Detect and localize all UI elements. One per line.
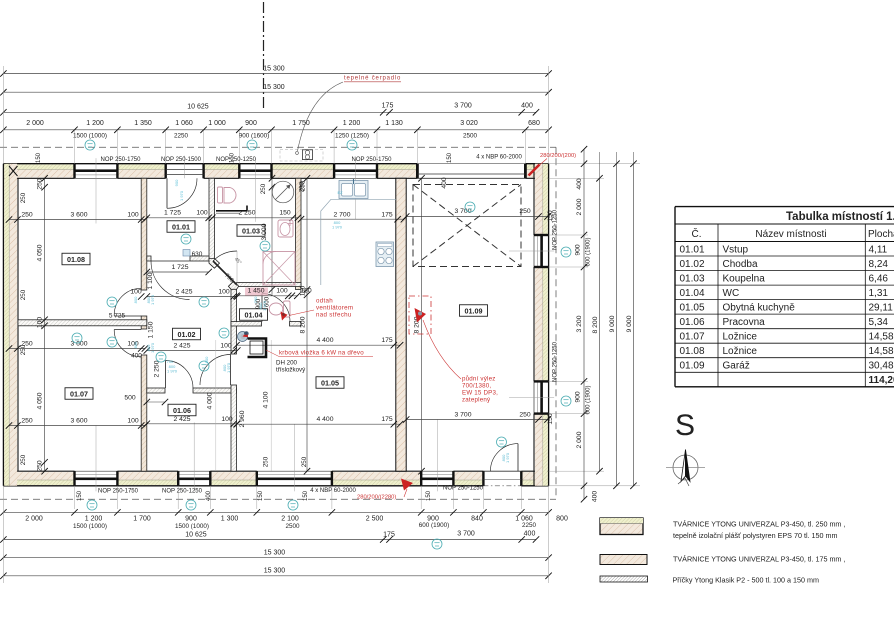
svg-text:01.02: 01.02 xyxy=(178,330,196,339)
svg-text:1 725: 1 725 xyxy=(164,210,181,217)
svg-text:S: S xyxy=(675,409,695,442)
svg-text:100: 100 xyxy=(276,288,288,295)
svg-text:1 970: 1 970 xyxy=(262,300,267,311)
svg-text:840: 840 xyxy=(471,516,483,523)
svg-text:500: 500 xyxy=(124,395,136,402)
svg-text:3 700: 3 700 xyxy=(457,531,475,538)
svg-text:WC: WC xyxy=(723,288,740,299)
svg-text:NOP 250-1250: NOP 250-1250 xyxy=(162,489,203,495)
svg-text:150: 150 xyxy=(279,210,291,217)
svg-text:3 000: 3 000 xyxy=(261,223,268,240)
svg-text:4 000: 4 000 xyxy=(207,392,214,409)
svg-text:400: 400 xyxy=(524,531,536,538)
svg-text:700: 700 xyxy=(253,296,258,303)
svg-text:01.08: 01.08 xyxy=(680,346,705,357)
svg-text:400: 400 xyxy=(521,103,533,110)
svg-text:1 970: 1 970 xyxy=(167,369,178,374)
svg-text:1500 (1000): 1500 (1000) xyxy=(73,133,107,140)
svg-text:4,11: 4,11 xyxy=(869,244,888,255)
svg-text:250: 250 xyxy=(37,460,44,472)
svg-text:1500 (1000): 1500 (1000) xyxy=(175,523,209,530)
svg-text:9 000: 9 000 xyxy=(626,315,633,332)
svg-text:NOP 250-1750: NOP 250-1750 xyxy=(352,157,393,163)
svg-text:600 (1900): 600 (1900) xyxy=(586,385,592,414)
svg-text:3 020: 3 020 xyxy=(460,120,478,127)
svg-text:14,58: 14,58 xyxy=(869,346,894,357)
svg-text:400: 400 xyxy=(592,491,599,503)
svg-text:4 100: 4 100 xyxy=(263,391,270,408)
svg-text:1 725: 1 725 xyxy=(171,264,188,271)
svg-text:1 700: 1 700 xyxy=(133,516,151,523)
svg-text:100: 100 xyxy=(220,343,232,350)
svg-text:250: 250 xyxy=(20,192,27,203)
svg-text:2500: 2500 xyxy=(463,133,478,140)
svg-text:400: 400 xyxy=(441,177,448,189)
svg-text:1 100: 1 100 xyxy=(147,272,154,289)
svg-text:01.09: 01.09 xyxy=(465,307,483,316)
svg-text:280/200/(2280): 280/200/(2280) xyxy=(357,495,396,501)
svg-text:100: 100 xyxy=(221,416,233,423)
svg-text:1 970: 1 970 xyxy=(505,452,510,463)
svg-text:01.01: 01.01 xyxy=(172,223,190,232)
svg-text:2 000: 2 000 xyxy=(576,431,583,448)
svg-text:150: 150 xyxy=(547,413,554,425)
svg-text:1 200: 1 200 xyxy=(86,120,104,127)
svg-text:NOP 250-1250: NOP 250-1250 xyxy=(216,157,257,163)
svg-text:150: 150 xyxy=(77,490,83,501)
svg-text:2250: 2250 xyxy=(522,522,537,529)
svg-text:4 400: 4 400 xyxy=(316,416,333,423)
svg-text:Ložnice: Ložnice xyxy=(723,346,758,357)
svg-text:800: 800 xyxy=(133,341,138,348)
svg-text:250: 250 xyxy=(20,454,27,465)
svg-text:Tabulka místností 1.NP: Tabulka místností 1.NP xyxy=(786,211,894,223)
svg-text:odtah: odtah xyxy=(316,298,333,305)
svg-text:15 300: 15 300 xyxy=(264,550,286,557)
svg-text:150: 150 xyxy=(447,152,453,163)
svg-text:2500: 2500 xyxy=(285,523,300,530)
svg-text:8 200: 8 200 xyxy=(299,316,306,333)
svg-text:30,48: 30,48 xyxy=(869,361,894,372)
svg-text:250: 250 xyxy=(21,418,33,425)
svg-text:900: 900 xyxy=(174,179,179,186)
svg-text:2 000: 2 000 xyxy=(25,516,43,523)
svg-text:NOP 250-1750: NOP 250-1750 xyxy=(98,489,139,495)
svg-text:01.06: 01.06 xyxy=(173,406,191,415)
svg-text:tepelně izolační plášť polysty: tepelně izolační plášť polystyren EPS 70… xyxy=(673,531,838,540)
svg-text:150: 150 xyxy=(36,152,42,163)
svg-text:8,24: 8,24 xyxy=(869,259,889,270)
svg-text:800: 800 xyxy=(133,296,138,303)
svg-text:150: 150 xyxy=(299,285,306,296)
svg-text:1,31: 1,31 xyxy=(869,288,889,299)
svg-text:150: 150 xyxy=(230,152,236,163)
svg-text:630: 630 xyxy=(192,251,203,258)
svg-text:250: 250 xyxy=(37,178,44,190)
svg-text:TVÁRNICE YTONG UNIVERZAL P3-45: TVÁRNICE YTONG UNIVERZAL P3-450, tl. 250… xyxy=(673,520,845,529)
svg-text:900: 900 xyxy=(185,516,197,523)
svg-text:1 130: 1 130 xyxy=(385,120,403,127)
svg-text:900: 900 xyxy=(245,120,257,127)
svg-text:01.08: 01.08 xyxy=(67,255,85,264)
svg-text:2 100: 2 100 xyxy=(281,516,299,523)
svg-text:175: 175 xyxy=(382,103,394,110)
svg-text:1500 (1000): 1500 (1000) xyxy=(73,523,107,530)
svg-text:EW 15 DP3,: EW 15 DP3, xyxy=(462,390,498,397)
svg-text:1 450: 1 450 xyxy=(247,288,264,295)
svg-text:EZ: EZ xyxy=(337,190,343,195)
svg-text:01.09: 01.09 xyxy=(680,361,705,372)
svg-text:900: 900 xyxy=(575,391,582,403)
svg-text:1 060: 1 060 xyxy=(175,120,193,127)
svg-text:Obytná kuchyně: Obytná kuchyně xyxy=(723,303,796,314)
svg-text:01.07: 01.07 xyxy=(680,332,705,343)
svg-text:1 150: 1 150 xyxy=(148,321,155,338)
svg-text:ventilátorem: ventilátorem xyxy=(316,305,353,312)
svg-text:třísložkový: třísložkový xyxy=(276,367,306,374)
svg-text:Název místnosti: Název místnosti xyxy=(755,229,826,240)
svg-text:tepelné čerpadlo: tepelné čerpadlo xyxy=(344,76,401,82)
svg-text:8 200: 8 200 xyxy=(592,316,599,333)
svg-text:29,11: 29,11 xyxy=(869,303,894,314)
svg-text:400: 400 xyxy=(131,353,142,360)
svg-text:175: 175 xyxy=(383,532,395,539)
svg-text:krbová vložka 6 kW na dřevo: krbová vložka 6 kW na dřevo xyxy=(279,350,364,357)
svg-text:175: 175 xyxy=(381,416,393,423)
svg-text:5 725: 5 725 xyxy=(109,313,126,320)
svg-text:1 970: 1 970 xyxy=(332,225,343,230)
svg-text:DH 200: DH 200 xyxy=(276,360,298,367)
svg-text:2 500: 2 500 xyxy=(366,516,384,523)
svg-text:1 350: 1 350 xyxy=(134,120,152,127)
svg-text:01.04: 01.04 xyxy=(245,311,263,320)
svg-text:Chodba: Chodba xyxy=(723,259,758,270)
svg-text:Pracovna: Pracovna xyxy=(723,317,766,328)
svg-text:114,20: 114,20 xyxy=(869,375,894,386)
svg-text:400: 400 xyxy=(206,490,212,501)
svg-text:15 300: 15 300 xyxy=(263,84,285,91)
svg-text:TVÁRNICE YTONG UNIVERZAL P3-45: TVÁRNICE YTONG UNIVERZAL P3-450, tl. 175… xyxy=(673,555,845,564)
svg-text:100: 100 xyxy=(130,289,142,296)
svg-text:4 050: 4 050 xyxy=(37,392,44,409)
svg-text:zateplený: zateplený xyxy=(462,397,491,404)
svg-text:NOP 250-1750: NOP 250-1750 xyxy=(101,157,142,163)
svg-text:01.07: 01.07 xyxy=(70,390,88,399)
svg-text:250: 250 xyxy=(299,180,306,191)
svg-text:1 200: 1 200 xyxy=(85,516,103,523)
svg-text:1 000: 1 000 xyxy=(208,120,226,127)
svg-text:1 200: 1 200 xyxy=(343,120,361,127)
svg-text:400: 400 xyxy=(576,178,583,190)
svg-text:půdní výlez: půdní výlez xyxy=(462,376,496,383)
svg-text:14,58: 14,58 xyxy=(869,332,894,343)
svg-text:800: 800 xyxy=(556,516,568,523)
svg-text:NOP 250-1250: NOP 250-1250 xyxy=(553,341,559,382)
svg-text:100: 100 xyxy=(196,210,208,217)
svg-text:Koupelna: Koupelna xyxy=(723,274,766,285)
svg-text:4 x NBP 60-2000: 4 x NBP 60-2000 xyxy=(310,488,356,494)
svg-text:280/200/(200): 280/200/(200) xyxy=(540,153,576,159)
svg-text:250: 250 xyxy=(20,344,27,355)
svg-text:150: 150 xyxy=(426,490,432,501)
svg-text:2 425: 2 425 xyxy=(173,343,190,350)
svg-text:250: 250 xyxy=(260,183,267,194)
svg-text:3 600: 3 600 xyxy=(70,418,87,425)
svg-text:175: 175 xyxy=(381,337,393,344)
svg-text:2 700: 2 700 xyxy=(333,212,350,219)
svg-text:1 750: 1 750 xyxy=(292,120,310,127)
svg-text:150: 150 xyxy=(258,490,264,501)
svg-text:2250: 2250 xyxy=(174,133,189,140)
svg-text:01.03: 01.03 xyxy=(242,227,260,236)
svg-text:100: 100 xyxy=(127,212,139,219)
svg-text:100: 100 xyxy=(218,289,230,296)
svg-text:Garáž: Garáž xyxy=(723,361,750,372)
svg-text:4 400: 4 400 xyxy=(316,337,333,344)
svg-text:5,34: 5,34 xyxy=(869,317,889,328)
svg-text:Č.: Č. xyxy=(692,227,702,240)
svg-text:175: 175 xyxy=(381,212,393,219)
svg-text:1250 (1250): 1250 (1250) xyxy=(335,133,369,140)
svg-text:NOP 250-1500: NOP 250-1500 xyxy=(161,157,202,163)
svg-text:1 300: 1 300 xyxy=(221,516,239,523)
svg-text:250: 250 xyxy=(263,456,270,467)
svg-text:Vstup: Vstup xyxy=(723,244,749,255)
svg-text:Příčky Ytong Klasik P2 - 500 t: Příčky Ytong Klasik P2 - 500 tl. 100 a 1… xyxy=(673,576,819,585)
svg-text:2 000: 2 000 xyxy=(576,198,583,215)
svg-text:15 300: 15 300 xyxy=(263,66,285,73)
svg-text:01.05: 01.05 xyxy=(321,379,339,388)
svg-text:Plocha: Plocha xyxy=(868,229,894,240)
svg-text:4 x NBP 60-2000: 4 x NBP 60-2000 xyxy=(476,155,522,161)
svg-text:NOP 250-1250: NOP 250-1250 xyxy=(443,486,484,492)
svg-text:800: 800 xyxy=(204,356,209,363)
svg-text:Ložnice: Ložnice xyxy=(723,332,758,343)
svg-text:600 (1900): 600 (1900) xyxy=(419,522,449,529)
svg-text:680: 680 xyxy=(528,120,540,127)
svg-text:15 300: 15 300 xyxy=(264,568,286,575)
svg-text:3 700: 3 700 xyxy=(454,103,472,110)
svg-text:2 960: 2 960 xyxy=(239,410,246,427)
svg-text:01.05: 01.05 xyxy=(680,303,705,314)
svg-text:3 700: 3 700 xyxy=(454,412,471,419)
svg-text:2 250: 2 250 xyxy=(154,360,161,377)
svg-text:4 050: 4 050 xyxy=(37,244,44,261)
svg-text:10 625: 10 625 xyxy=(187,104,209,111)
svg-text:3 200: 3 200 xyxy=(576,315,583,332)
svg-text:01.03: 01.03 xyxy=(680,274,705,285)
svg-text:100: 100 xyxy=(37,317,44,329)
svg-text:900 (1600): 900 (1600) xyxy=(239,133,269,140)
svg-text:01.02: 01.02 xyxy=(680,259,705,270)
svg-text:600 (1900): 600 (1900) xyxy=(586,237,592,266)
svg-text:1 970: 1 970 xyxy=(179,190,184,201)
svg-text:2 425: 2 425 xyxy=(175,289,192,296)
svg-text:150: 150 xyxy=(547,210,554,222)
svg-text:9 000: 9 000 xyxy=(609,315,616,332)
svg-text:01.01: 01.01 xyxy=(680,244,705,255)
svg-text:900: 900 xyxy=(575,244,582,256)
svg-text:2 000: 2 000 xyxy=(26,120,44,127)
svg-text:700/1380,: 700/1380, xyxy=(462,383,491,390)
svg-text:250: 250 xyxy=(20,289,27,300)
svg-text:6,46: 6,46 xyxy=(869,274,889,285)
svg-text:nad střechu: nad střechu xyxy=(316,312,352,319)
svg-text:250: 250 xyxy=(519,412,531,419)
svg-text:1 970: 1 970 xyxy=(150,294,155,305)
svg-text:1 970: 1 970 xyxy=(150,342,155,353)
svg-text:1 970: 1 970 xyxy=(226,362,231,373)
svg-text:01.04: 01.04 xyxy=(680,288,705,299)
svg-text:100: 100 xyxy=(127,418,139,425)
svg-text:250: 250 xyxy=(21,212,33,219)
svg-text:3 600: 3 600 xyxy=(70,212,87,219)
svg-text:10 625: 10 625 xyxy=(185,532,207,539)
svg-text:01.06: 01.06 xyxy=(680,317,705,328)
svg-text:150: 150 xyxy=(303,490,309,501)
svg-text:2 425: 2 425 xyxy=(173,416,190,423)
